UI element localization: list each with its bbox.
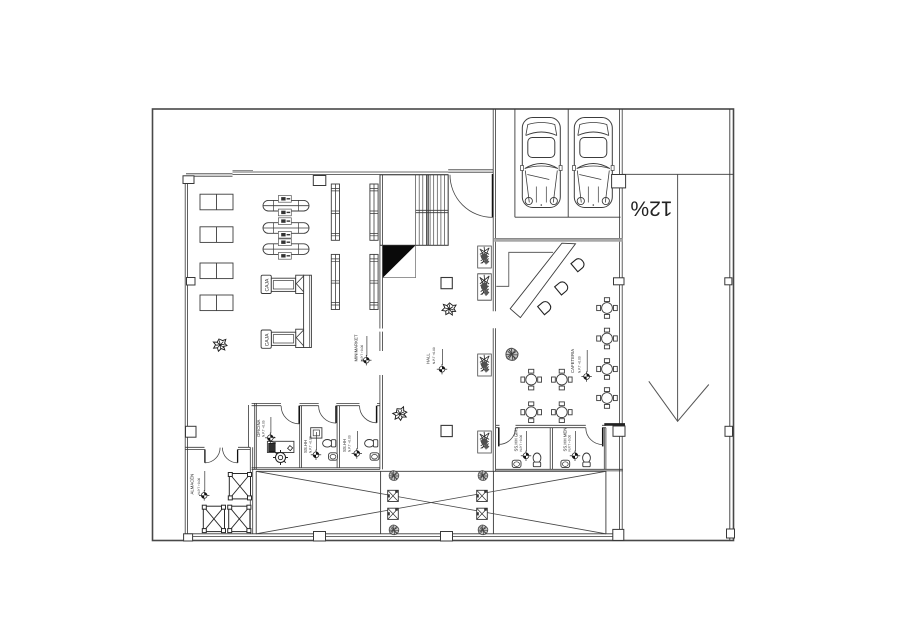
svg-text:12%: 12%: [630, 197, 672, 220]
svg-text:N.P.T +0.05: N.P.T +0.05: [261, 420, 265, 437]
svg-text:OFICINA: OFICINA: [256, 419, 261, 437]
svg-text:N.P.T +0.00: N.P.T +0.00: [197, 478, 201, 495]
svg-text:N.P.T +0.00: N.P.T +0.00: [519, 435, 523, 452]
svg-text:N.P.T +0.00: N.P.T +0.00: [432, 347, 436, 364]
svg-text:N.P.T +0.00: N.P.T +0.00: [308, 436, 312, 453]
svg-text:N.P.T +0.00: N.P.T +0.00: [347, 435, 351, 452]
svg-text:N.P.T +0.00: N.P.T +0.00: [568, 435, 572, 452]
svg-text:HALL: HALL: [426, 353, 431, 364]
svg-text:MINIMARKET: MINIMARKET: [354, 334, 359, 361]
svg-text:N.P.T +0.00: N.P.T +0.00: [577, 356, 581, 373]
svg-text:CAFETERIA: CAFETERIA: [570, 349, 575, 373]
svg-text:CAJA: CAJA: [264, 333, 270, 346]
svg-text:CAJA: CAJA: [264, 278, 270, 291]
svg-text:ALMACÉN: ALMACÉN: [190, 474, 195, 495]
